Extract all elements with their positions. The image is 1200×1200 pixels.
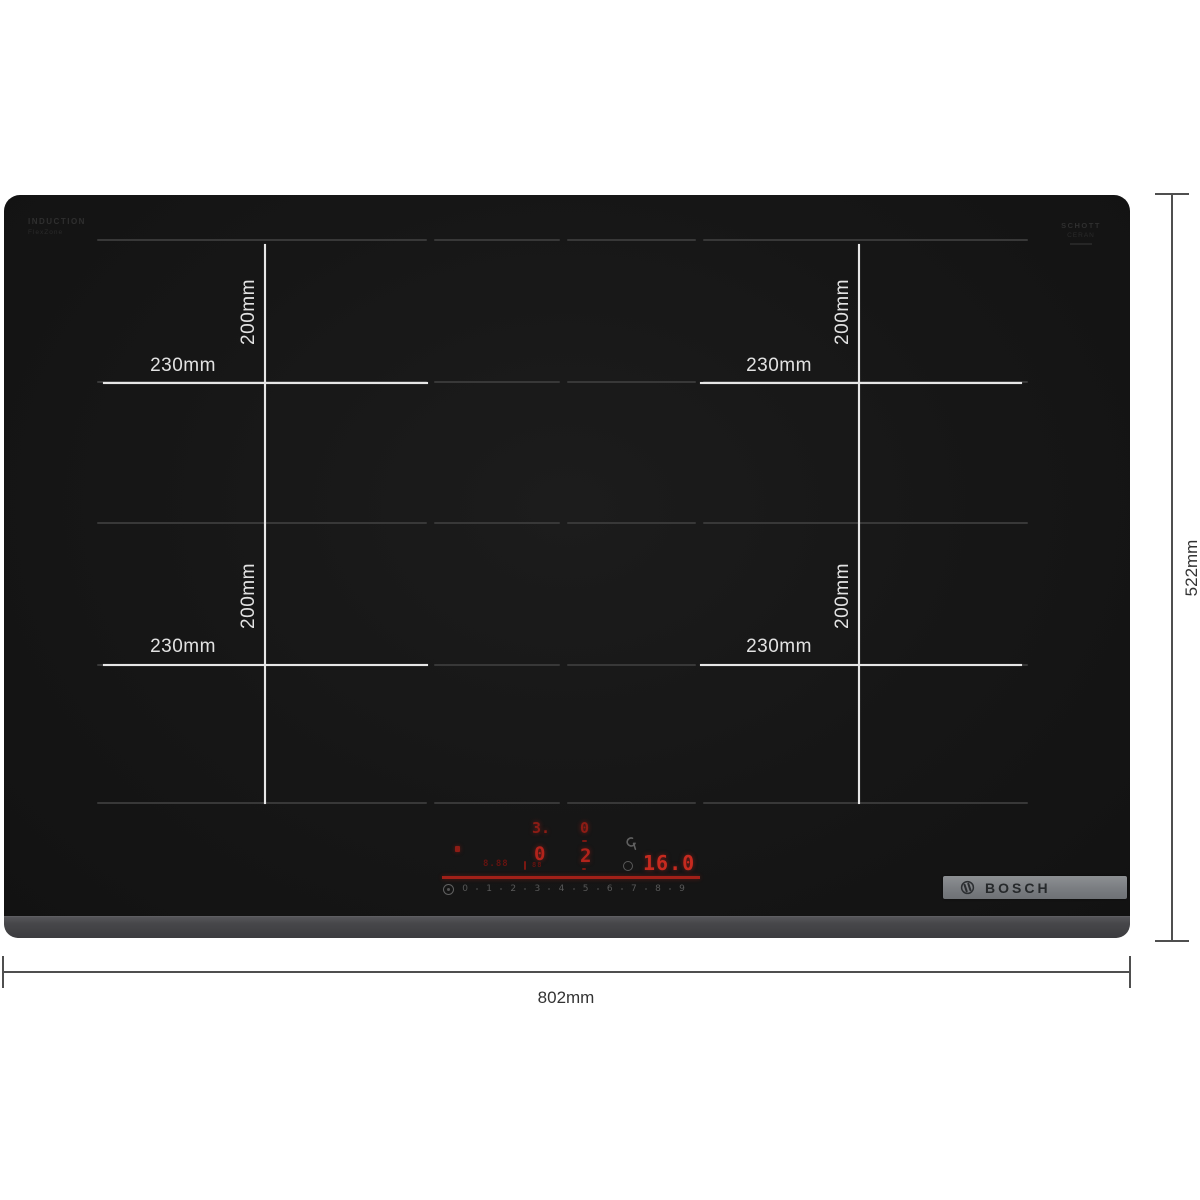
control-panel: 8.88 88 3. 0 0 2 16.0 0 1 2 3 4 (440, 815, 760, 907)
aux-divider (524, 861, 526, 870)
zone-height-line-right (858, 244, 860, 804)
aux-display-left: 8.88 (483, 859, 509, 869)
slider-start-icon[interactable] (443, 884, 454, 895)
overall-height-label: 522mm (1182, 528, 1200, 608)
hob-print-left-line1: INDUCTION (28, 216, 86, 228)
zone-outline-segment (97, 522, 427, 524)
hob-front-bezel (4, 916, 1130, 938)
zone-height-label-top-left: 200mm (238, 272, 260, 352)
zone-height-label-bottom-right: 200mm (832, 556, 854, 636)
hob-print-right-line2: CERAN (1052, 231, 1110, 241)
scale-number[interactable]: 5 (583, 884, 589, 894)
scale-number[interactable]: 9 (679, 884, 685, 894)
height-dimension-line (1171, 194, 1173, 942)
zone-width-label-bottom-right: 230mm (739, 636, 819, 658)
zone-outline-segment (567, 381, 696, 383)
zone-br-upper-mark (582, 840, 587, 842)
zone-width-line-top-right (700, 382, 1022, 384)
scale-number[interactable]: 8 (655, 884, 661, 894)
zone-level-display-br[interactable]: 2 (580, 845, 591, 867)
zone-level-display-tr: 0 (580, 819, 589, 837)
power-slider-track[interactable] (442, 876, 700, 879)
height-dimension-tick-bottom (1155, 940, 1189, 942)
zone-outline-segment (434, 239, 560, 241)
overall-width-label: 802mm (526, 988, 606, 1008)
scale-number[interactable]: 4 (559, 884, 565, 894)
service-wrench-icon (622, 835, 639, 852)
power-indicator-icon (455, 846, 460, 852)
hob-print-top-right: SCHOTT CERAN (1052, 220, 1110, 245)
zone-width-line-bottom-right (700, 664, 1022, 666)
zone-width-label-top-left: 230mm (143, 355, 223, 377)
bosch-logo-icon (960, 880, 975, 895)
width-dimension-tick-left (2, 956, 4, 988)
zone-outline-segment (567, 239, 696, 241)
timer-display: 16.0 (643, 851, 695, 875)
timer-ring-icon[interactable] (623, 861, 633, 871)
scale-number[interactable]: 3 (535, 884, 541, 894)
bosch-badge: BOSCH (943, 876, 1127, 899)
product-dimension-diagram: INDUCTION FlexZone SCHOTT CERAN (0, 0, 1200, 1200)
zone-outline-segment (97, 802, 427, 804)
zone-height-label-top-right: 200mm (832, 272, 854, 352)
zone-outline-segment (434, 522, 560, 524)
zone-outline-segment (567, 522, 696, 524)
zone-outline-segment (703, 522, 1028, 524)
width-dimension-tick-right (1129, 956, 1131, 988)
zone-br-lower-mark (582, 868, 586, 870)
zone-level-display-tl: 3. (532, 819, 550, 837)
zone-height-label-bottom-left: 200mm (238, 556, 260, 636)
width-dimension-line (3, 971, 1130, 973)
scale-number[interactable]: 6 (607, 884, 613, 894)
height-dimension-tick-top (1155, 193, 1189, 195)
zone-outline-segment (703, 802, 1028, 804)
zone-level-display-bl[interactable]: 0 (534, 843, 545, 865)
zone-width-label-top-right: 230mm (739, 355, 819, 377)
zone-outline-segment (434, 381, 560, 383)
bosch-brand-text: BOSCH (985, 880, 1051, 896)
zone-outline-segment (703, 239, 1028, 241)
hob-print-top-left: INDUCTION FlexZone (28, 216, 86, 238)
hob-print-right-line1: SCHOTT (1052, 220, 1110, 231)
zone-width-label-bottom-left: 230mm (143, 636, 223, 658)
zone-outline-segment (97, 239, 427, 241)
hob-print-right-rule (1070, 243, 1092, 245)
scale-number[interactable]: 0 (462, 884, 468, 894)
scale-number[interactable]: 7 (631, 884, 637, 894)
zone-outline-segment (434, 664, 560, 666)
zone-outline-segment (567, 802, 696, 804)
scale-number[interactable]: 1 (486, 884, 492, 894)
zone-outline-segment (434, 802, 560, 804)
hob-print-left-line2: FlexZone (28, 228, 86, 238)
induction-hob: INDUCTION FlexZone SCHOTT CERAN (4, 195, 1130, 938)
zone-height-line-left (264, 244, 266, 804)
zone-outline-segment (567, 664, 696, 666)
scale-number[interactable]: 2 (510, 884, 516, 894)
power-slider-scale[interactable]: 0 1 2 3 4 5 6 7 8 9 (443, 881, 685, 897)
